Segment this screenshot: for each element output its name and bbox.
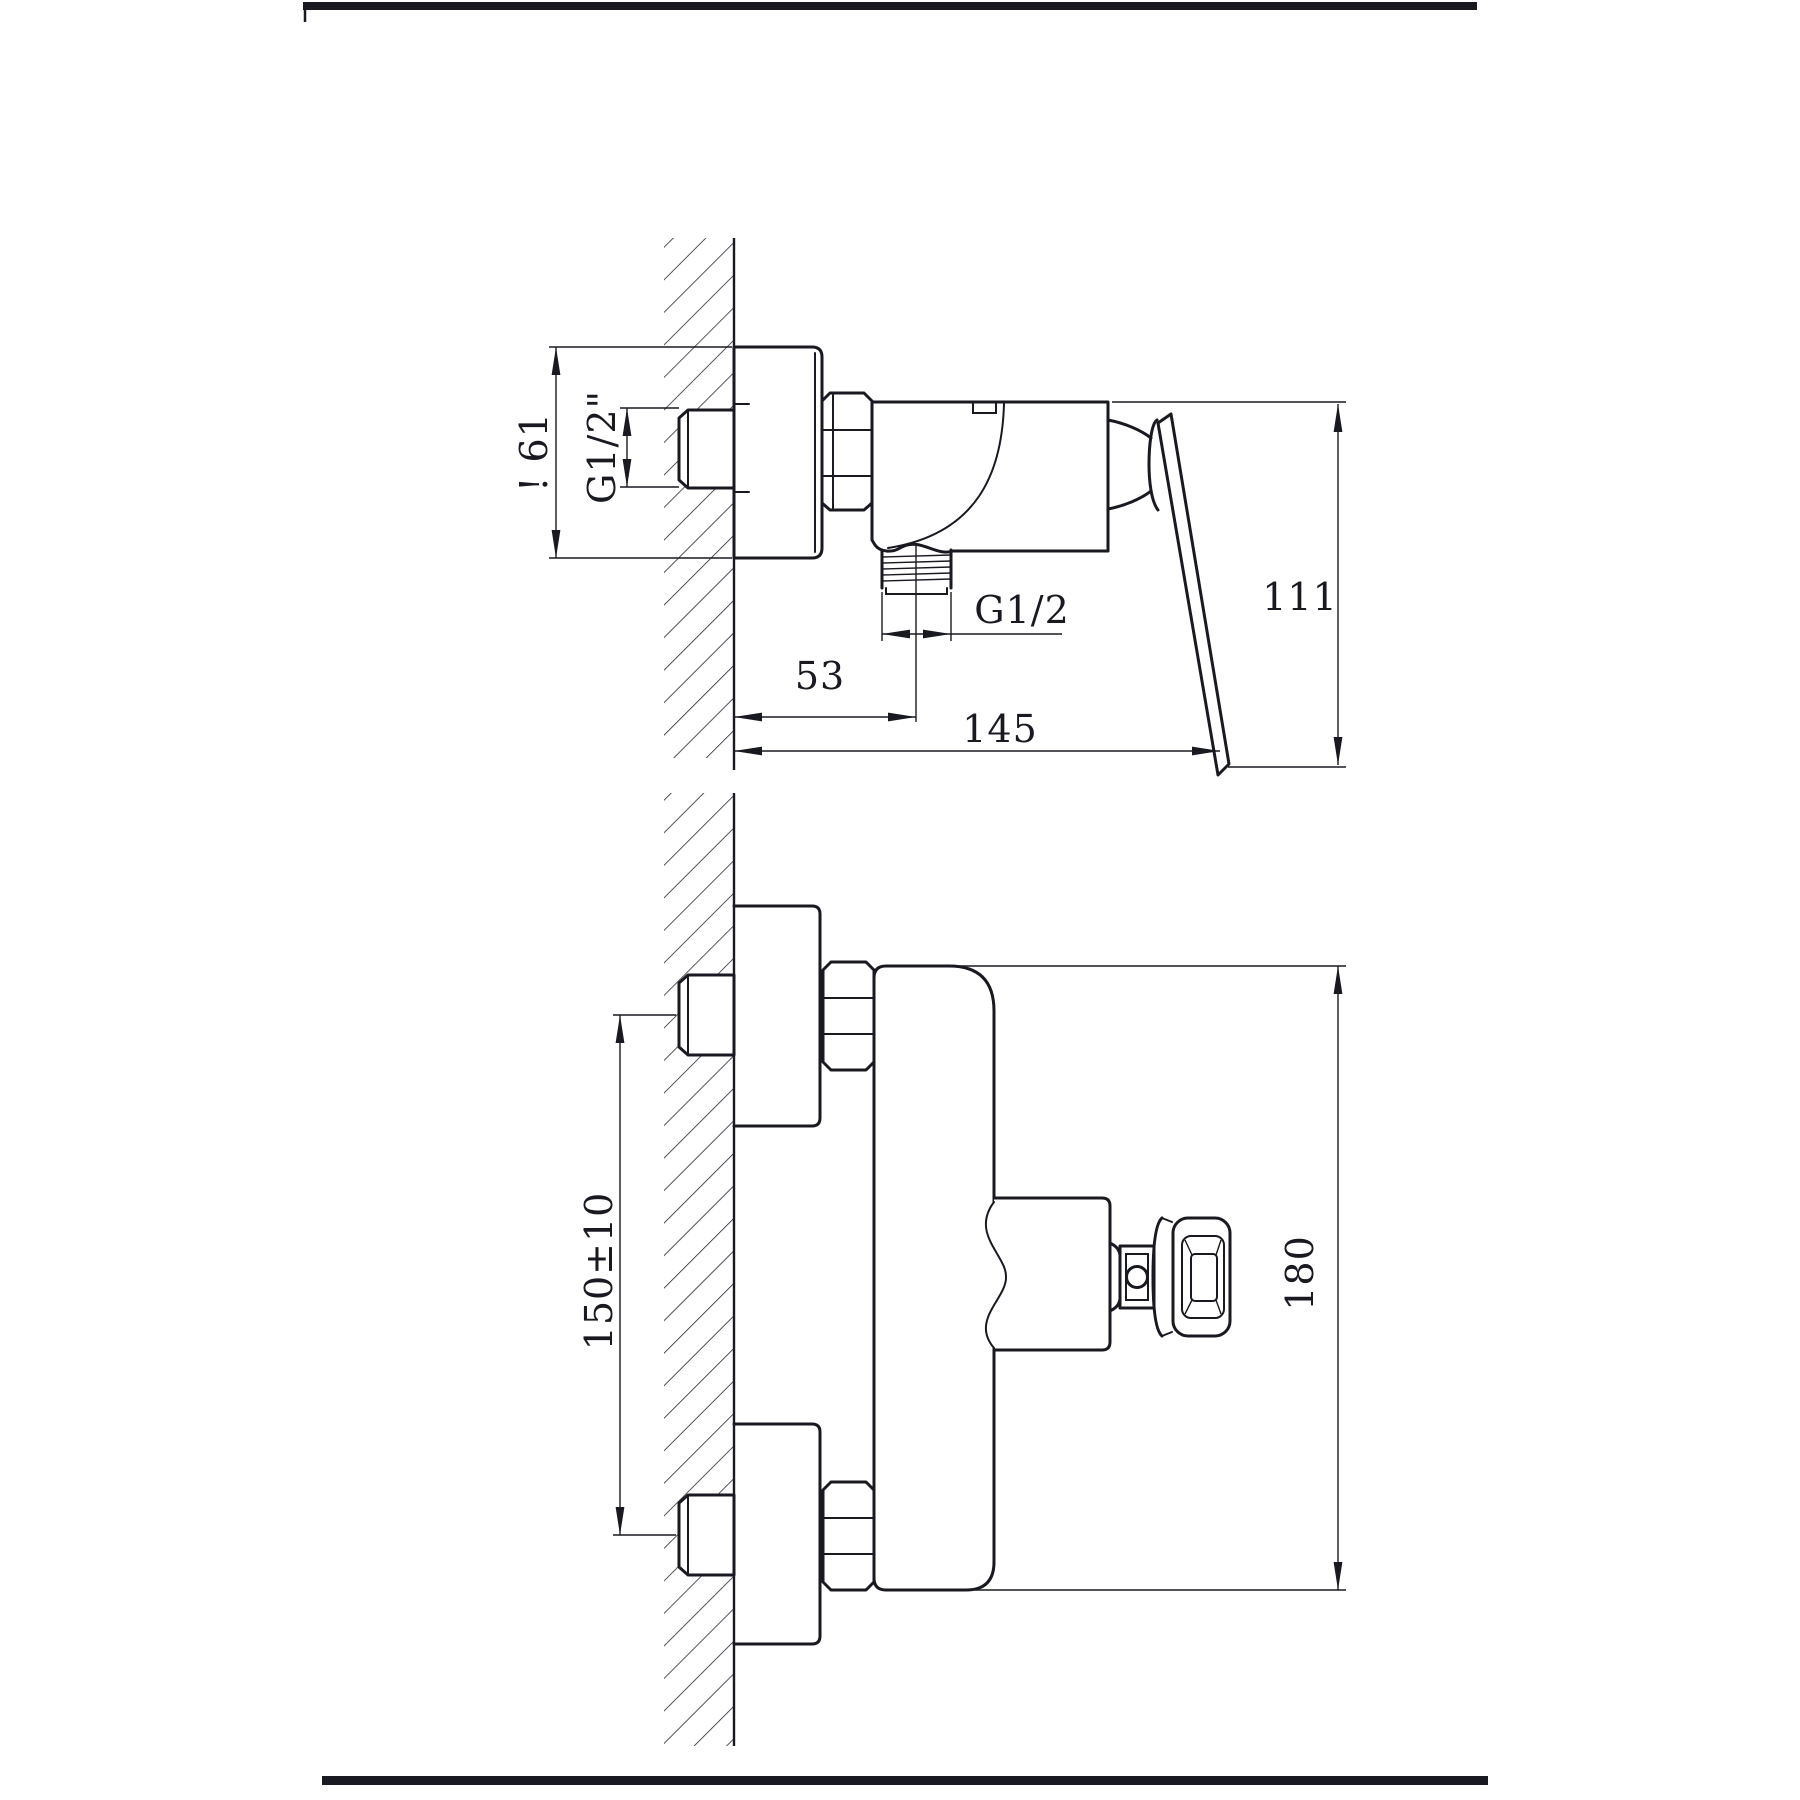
side-valve-body [872, 402, 1108, 552]
lower-pipe-end [679, 1495, 734, 1575]
side-wall-hatch [664, 238, 734, 758]
dim-label-overall-depth: 145 [962, 707, 1038, 751]
dim-label-overall-height-side: 111 [1262, 575, 1338, 619]
side-hex-nut [822, 393, 872, 510]
inlet-eccentric-pipe [679, 410, 734, 488]
dim-label-outlet-thread: G1/2 [974, 588, 1070, 632]
front-valve-body [874, 966, 994, 1590]
dim-label-body-height: 180 [1278, 1235, 1322, 1311]
lower-eccentric-block [734, 1424, 820, 1644]
upper-pipe-end [679, 975, 734, 1055]
technical-drawing-svg: ! 61 G1/2" G1/2 53 145 [0, 0, 1800, 1800]
sheet-border-top [303, 2, 1477, 10]
dim-label-inlet-spacing: 150±10 [577, 1192, 621, 1351]
drawing-page: ! 61 G1/2" G1/2 53 145 [0, 0, 1800, 1800]
upper-hex-nut [823, 962, 874, 1070]
upper-eccentric-block [734, 906, 820, 1126]
cartridge-boss [994, 1198, 1110, 1350]
dim-label-wall-to-outlet: 53 [795, 654, 845, 698]
sheet-border-bottom [322, 1776, 1488, 1785]
dim-label-inlet-thread: G1/2" [580, 390, 624, 504]
lower-hex-nut [823, 1482, 874, 1590]
escutcheon-flange [734, 347, 822, 558]
front-wall-hatch [664, 793, 734, 1746]
dim-label-escutcheon-diameter: ! 61 [512, 412, 556, 492]
